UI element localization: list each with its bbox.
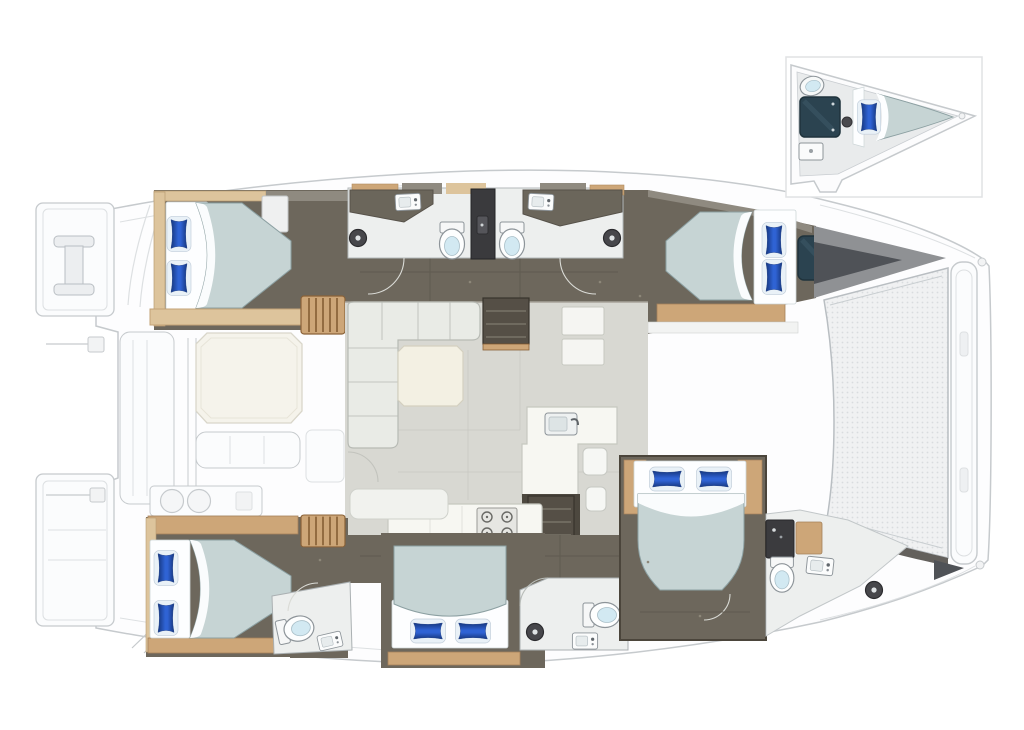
- toilet-icon: [440, 222, 465, 259]
- saloon-table: [398, 346, 463, 406]
- cockpit-grill: [150, 486, 262, 516]
- pillow-icon: [762, 222, 786, 257]
- catamaran-floorplan-svg: [0, 0, 1024, 730]
- cabin-fwd-starboard: [620, 456, 766, 640]
- cockpit-table: [196, 333, 302, 423]
- counter-wood: [796, 522, 822, 554]
- forepeak-inset: [786, 57, 982, 197]
- shelf: [657, 304, 785, 322]
- trampoline-net: [824, 268, 948, 558]
- pillow-icon: [455, 619, 490, 643]
- shower-head-icon: [350, 230, 367, 247]
- double-bed-icon: [392, 546, 508, 648]
- sink-icon: [806, 556, 834, 576]
- floor-hatch: [586, 487, 606, 511]
- floorplan-page: [0, 0, 1024, 730]
- bow-roller-inset: [959, 113, 965, 119]
- shower-head-icon: [604, 230, 621, 247]
- sink-icon: [395, 193, 421, 210]
- companionway-steps-port: [301, 296, 345, 334]
- sink-icon: [528, 193, 554, 210]
- saloon: [345, 298, 648, 552]
- pillow-icon: [167, 260, 191, 295]
- toilet-icon: [583, 603, 620, 628]
- pillow-icon: [696, 467, 731, 491]
- pillow-icon: [857, 100, 880, 134]
- pillow-icon: [649, 467, 684, 491]
- head-starboard-mid: [520, 578, 628, 650]
- companionway-steps-starboard: [301, 515, 345, 547]
- shower-head-icon: [866, 582, 883, 599]
- vanity-dark: [766, 520, 794, 558]
- pillow-icon: [154, 600, 178, 635]
- bow-roller-bottom: [976, 561, 984, 569]
- fitting-knob: [842, 117, 852, 127]
- floor-hatch: [583, 448, 607, 475]
- shelf: [388, 652, 520, 665]
- shower-head-icon: [527, 624, 544, 641]
- port-bathrooms: [348, 183, 624, 259]
- pillow-icon: [167, 216, 191, 251]
- forward-crossbeam: [951, 262, 977, 564]
- stairs-to-port-hull: [483, 298, 529, 350]
- fridge-unit: [562, 339, 604, 365]
- deck-hatch-icon: [800, 97, 840, 137]
- bow-roller-top: [978, 258, 986, 266]
- cockpit-bench-aft: [196, 432, 300, 468]
- pillow-icon: [154, 550, 178, 585]
- saloon-bench: [350, 489, 448, 519]
- fridge-unit: [562, 307, 604, 335]
- toilet-icon: [500, 222, 525, 259]
- pillow-icon: [410, 619, 445, 643]
- sink-icon: [572, 633, 597, 649]
- toilet-icon: [770, 557, 794, 592]
- double-bed-icon: [634, 461, 746, 590]
- pillow-icon: [762, 259, 786, 294]
